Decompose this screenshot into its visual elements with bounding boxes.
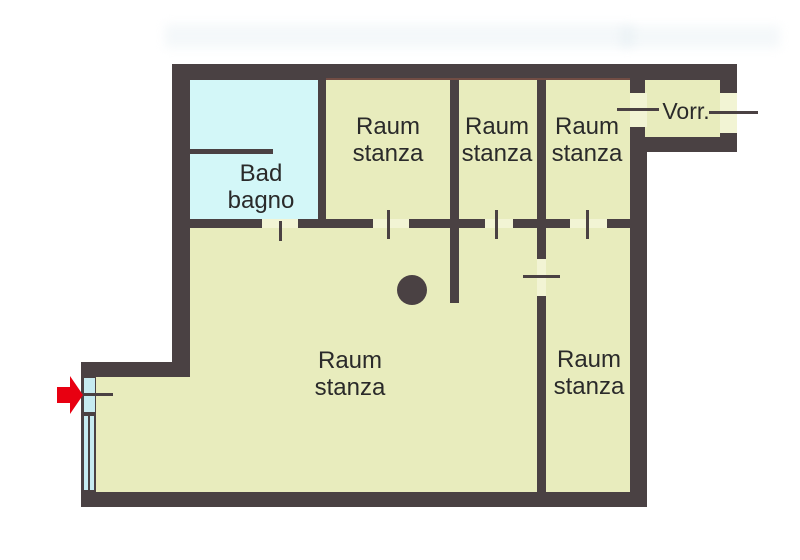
door-tick-bottom-right-room (523, 275, 560, 278)
door-tick-room-3 (586, 210, 589, 239)
room-label-top-1-line2: stanza (328, 140, 448, 167)
arrow-right-icon (57, 374, 83, 416)
room-label-vorraum-line1: Vorr. (646, 98, 726, 125)
door-tick-room-1 (387, 210, 390, 239)
room-label-top-3-line1: Raum (527, 113, 647, 140)
window-left-outer-pane (84, 416, 88, 490)
room-label-bathroom-line2: bagno (201, 187, 321, 214)
room-label-bottom-right-line2: stanza (529, 373, 649, 400)
entrance-door-tick (83, 393, 113, 396)
room-label-main-line2: stanza (290, 374, 410, 401)
floor-plan-canvas: Bad bagno Raum stanza Raum stanza Raum s… (0, 0, 800, 560)
room-label-main: Raum stanza (290, 347, 410, 401)
room-label-vorraum: Vorr. (646, 98, 726, 125)
door-tick-room-2 (495, 210, 498, 239)
room-label-bottom-right: Raum stanza (529, 346, 649, 400)
room-label-bathroom-line1: Bad (201, 160, 321, 187)
interior-wall-horizontal (190, 219, 630, 228)
door-tick-bathroom (279, 221, 282, 241)
room-label-top-3: Raum stanza (527, 113, 647, 167)
top-wall-accent-line (326, 78, 630, 80)
room-label-top-1: Raum stanza (328, 113, 448, 167)
bathroom-partition-wall (190, 149, 273, 154)
ghost-artifact-right (620, 26, 780, 48)
door-opening-room-2 (485, 219, 513, 228)
room-label-main-line1: Raum (290, 347, 410, 374)
arrow-right-shape (57, 376, 83, 414)
room-label-top-1-line1: Raum (328, 113, 448, 140)
window-left-inner-pane (90, 416, 94, 490)
room-label-bottom-right-line1: Raum (529, 346, 649, 373)
room-label-top-3-line2: stanza (527, 140, 647, 167)
room-label-bathroom: Bad bagno (201, 160, 321, 214)
column-circle (397, 275, 427, 305)
door-opening-room-1 (373, 219, 409, 228)
ghost-artifact-left (165, 24, 635, 48)
